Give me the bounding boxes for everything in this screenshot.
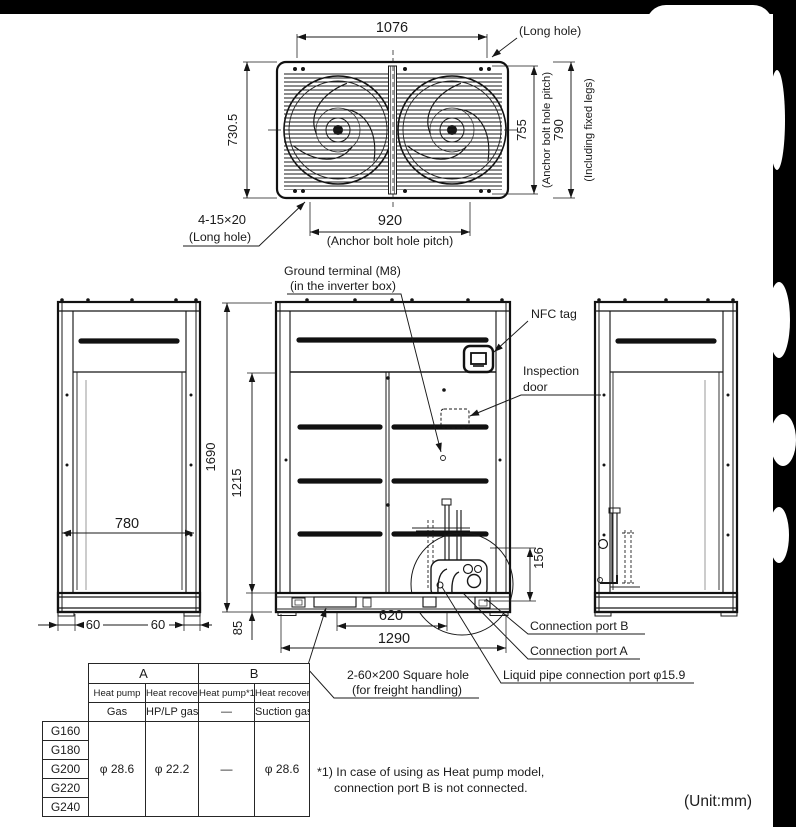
square-hole-label-1: 2-60×200 Square hole bbox=[347, 668, 469, 682]
dim-780: 780 bbox=[115, 516, 139, 532]
table-value: — bbox=[199, 722, 255, 817]
table-pipe-type: HP/LP gas bbox=[146, 703, 199, 722]
inspection-door-label-1: Inspection bbox=[523, 364, 579, 378]
right-side-view bbox=[595, 298, 737, 616]
drawing-page: 1076 (Long hole) 730.5 755 (Anchor bolt … bbox=[0, 0, 796, 827]
nfc-tag-label: NFC tag bbox=[531, 307, 577, 321]
dim-85: 85 bbox=[230, 621, 245, 635]
table-header: Heat recovery bbox=[255, 684, 310, 703]
table-value: φ 28.6 bbox=[89, 722, 146, 817]
dim-790: 790 bbox=[551, 119, 566, 141]
table-pipe-type: Suction gas bbox=[255, 703, 310, 722]
table-header: Heat pump bbox=[89, 684, 146, 703]
table-model: G240 bbox=[43, 798, 89, 817]
dim-730-5: 730.5 bbox=[225, 114, 240, 147]
ground-terminal-label-2: (in the inverter box) bbox=[290, 279, 396, 293]
dim-60-right: 60 bbox=[151, 617, 165, 632]
square-hole-label-2: (for freight handling) bbox=[352, 683, 462, 697]
nfc-tag-icon bbox=[464, 346, 493, 372]
dim-920: 920 bbox=[378, 213, 402, 229]
dim-156: 156 bbox=[531, 547, 546, 569]
table-header: Heat recovery bbox=[146, 684, 199, 703]
table-model: G220 bbox=[43, 779, 89, 798]
connection-port-b-label: Connection port B bbox=[530, 619, 628, 633]
left-side-view: 780 60 60 bbox=[38, 298, 212, 632]
dim-1076: 1076 bbox=[376, 20, 408, 36]
ground-terminal-label-1: Ground terminal (M8) bbox=[284, 264, 401, 278]
table-model: G180 bbox=[43, 741, 89, 760]
table-group-b: B bbox=[199, 664, 310, 684]
inspection-door-label-2: door bbox=[523, 380, 548, 394]
connection-port-a-label: Connection port A bbox=[530, 644, 629, 658]
long-hole-bottom-label: (Long hole) bbox=[189, 230, 251, 244]
bolt-hole-spec: 4-15×20 bbox=[198, 212, 246, 227]
dim-60-left: 60 bbox=[86, 617, 100, 632]
dim-755: 755 bbox=[514, 119, 529, 141]
footnote-line-1: *1) In case of using as Heat pump model, bbox=[317, 764, 544, 780]
table-corner bbox=[43, 703, 89, 722]
table-pipe-type: — bbox=[199, 703, 255, 722]
dim-1215: 1215 bbox=[229, 469, 244, 498]
table-model: G200 bbox=[43, 760, 89, 779]
table-pipe-type: Gas bbox=[89, 703, 146, 722]
table-header: Heat pump*1) bbox=[199, 684, 255, 703]
center-strut bbox=[389, 66, 397, 194]
footnote-line-2: connection port B is not connected. bbox=[334, 780, 544, 796]
dim-620: 620 bbox=[379, 608, 403, 624]
table-corner bbox=[43, 664, 89, 684]
long-hole-top-label: (Long hole) bbox=[519, 24, 581, 38]
pipe-size-table: A B Heat pump Heat recovery Heat pump*1)… bbox=[42, 663, 310, 817]
liquid-pipe-label: Liquid pipe connection port φ15.9 bbox=[503, 668, 685, 682]
anchor-pitch-h-label: (Anchor bolt hole pitch) bbox=[327, 234, 453, 248]
including-legs-label: (Including fixed legs) bbox=[583, 78, 595, 182]
table-value: φ 22.2 bbox=[146, 722, 199, 817]
table-model: G160 bbox=[43, 722, 89, 741]
dim-1290: 1290 bbox=[378, 631, 410, 647]
unit-note: (Unit:mm) bbox=[684, 793, 752, 811]
dim-1690: 1690 bbox=[203, 443, 218, 472]
table-value: φ 28.6 bbox=[255, 722, 310, 817]
footnote: *1) In case of using as Heat pump model,… bbox=[317, 764, 544, 796]
table-corner bbox=[43, 684, 89, 703]
table-group-a: A bbox=[89, 664, 199, 684]
